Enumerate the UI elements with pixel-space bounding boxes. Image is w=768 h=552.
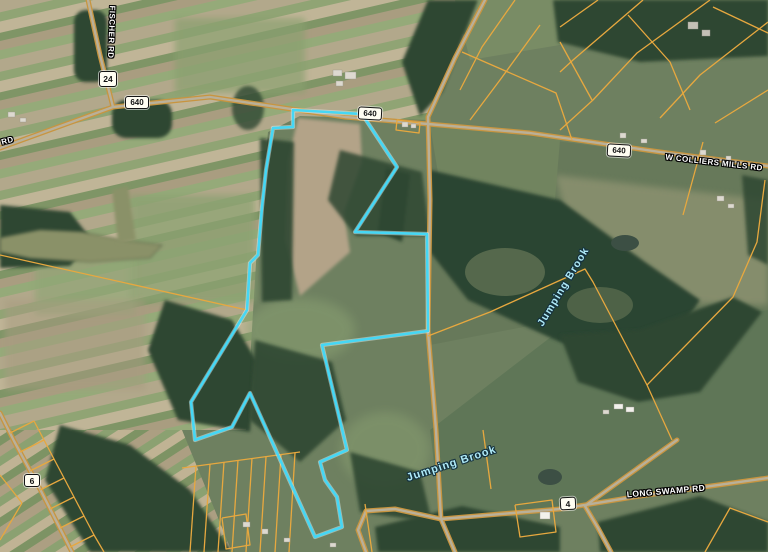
route-shield-6: 6 (24, 474, 40, 487)
route-shield-640-west: 640 (125, 96, 149, 109)
route-shield-24: 24 (99, 71, 117, 87)
road-label-fischer-rd: FISCHER RD (106, 1, 116, 63)
route-shield-640-center: 640 (358, 106, 383, 120)
route-shield-4: 4 (560, 497, 577, 511)
aerial-map-canvas[interactable]: FISCHER RD LS RD W COLLIERS MILLS RD LON… (0, 0, 768, 552)
route-shield-640-east: 640 (607, 143, 632, 157)
